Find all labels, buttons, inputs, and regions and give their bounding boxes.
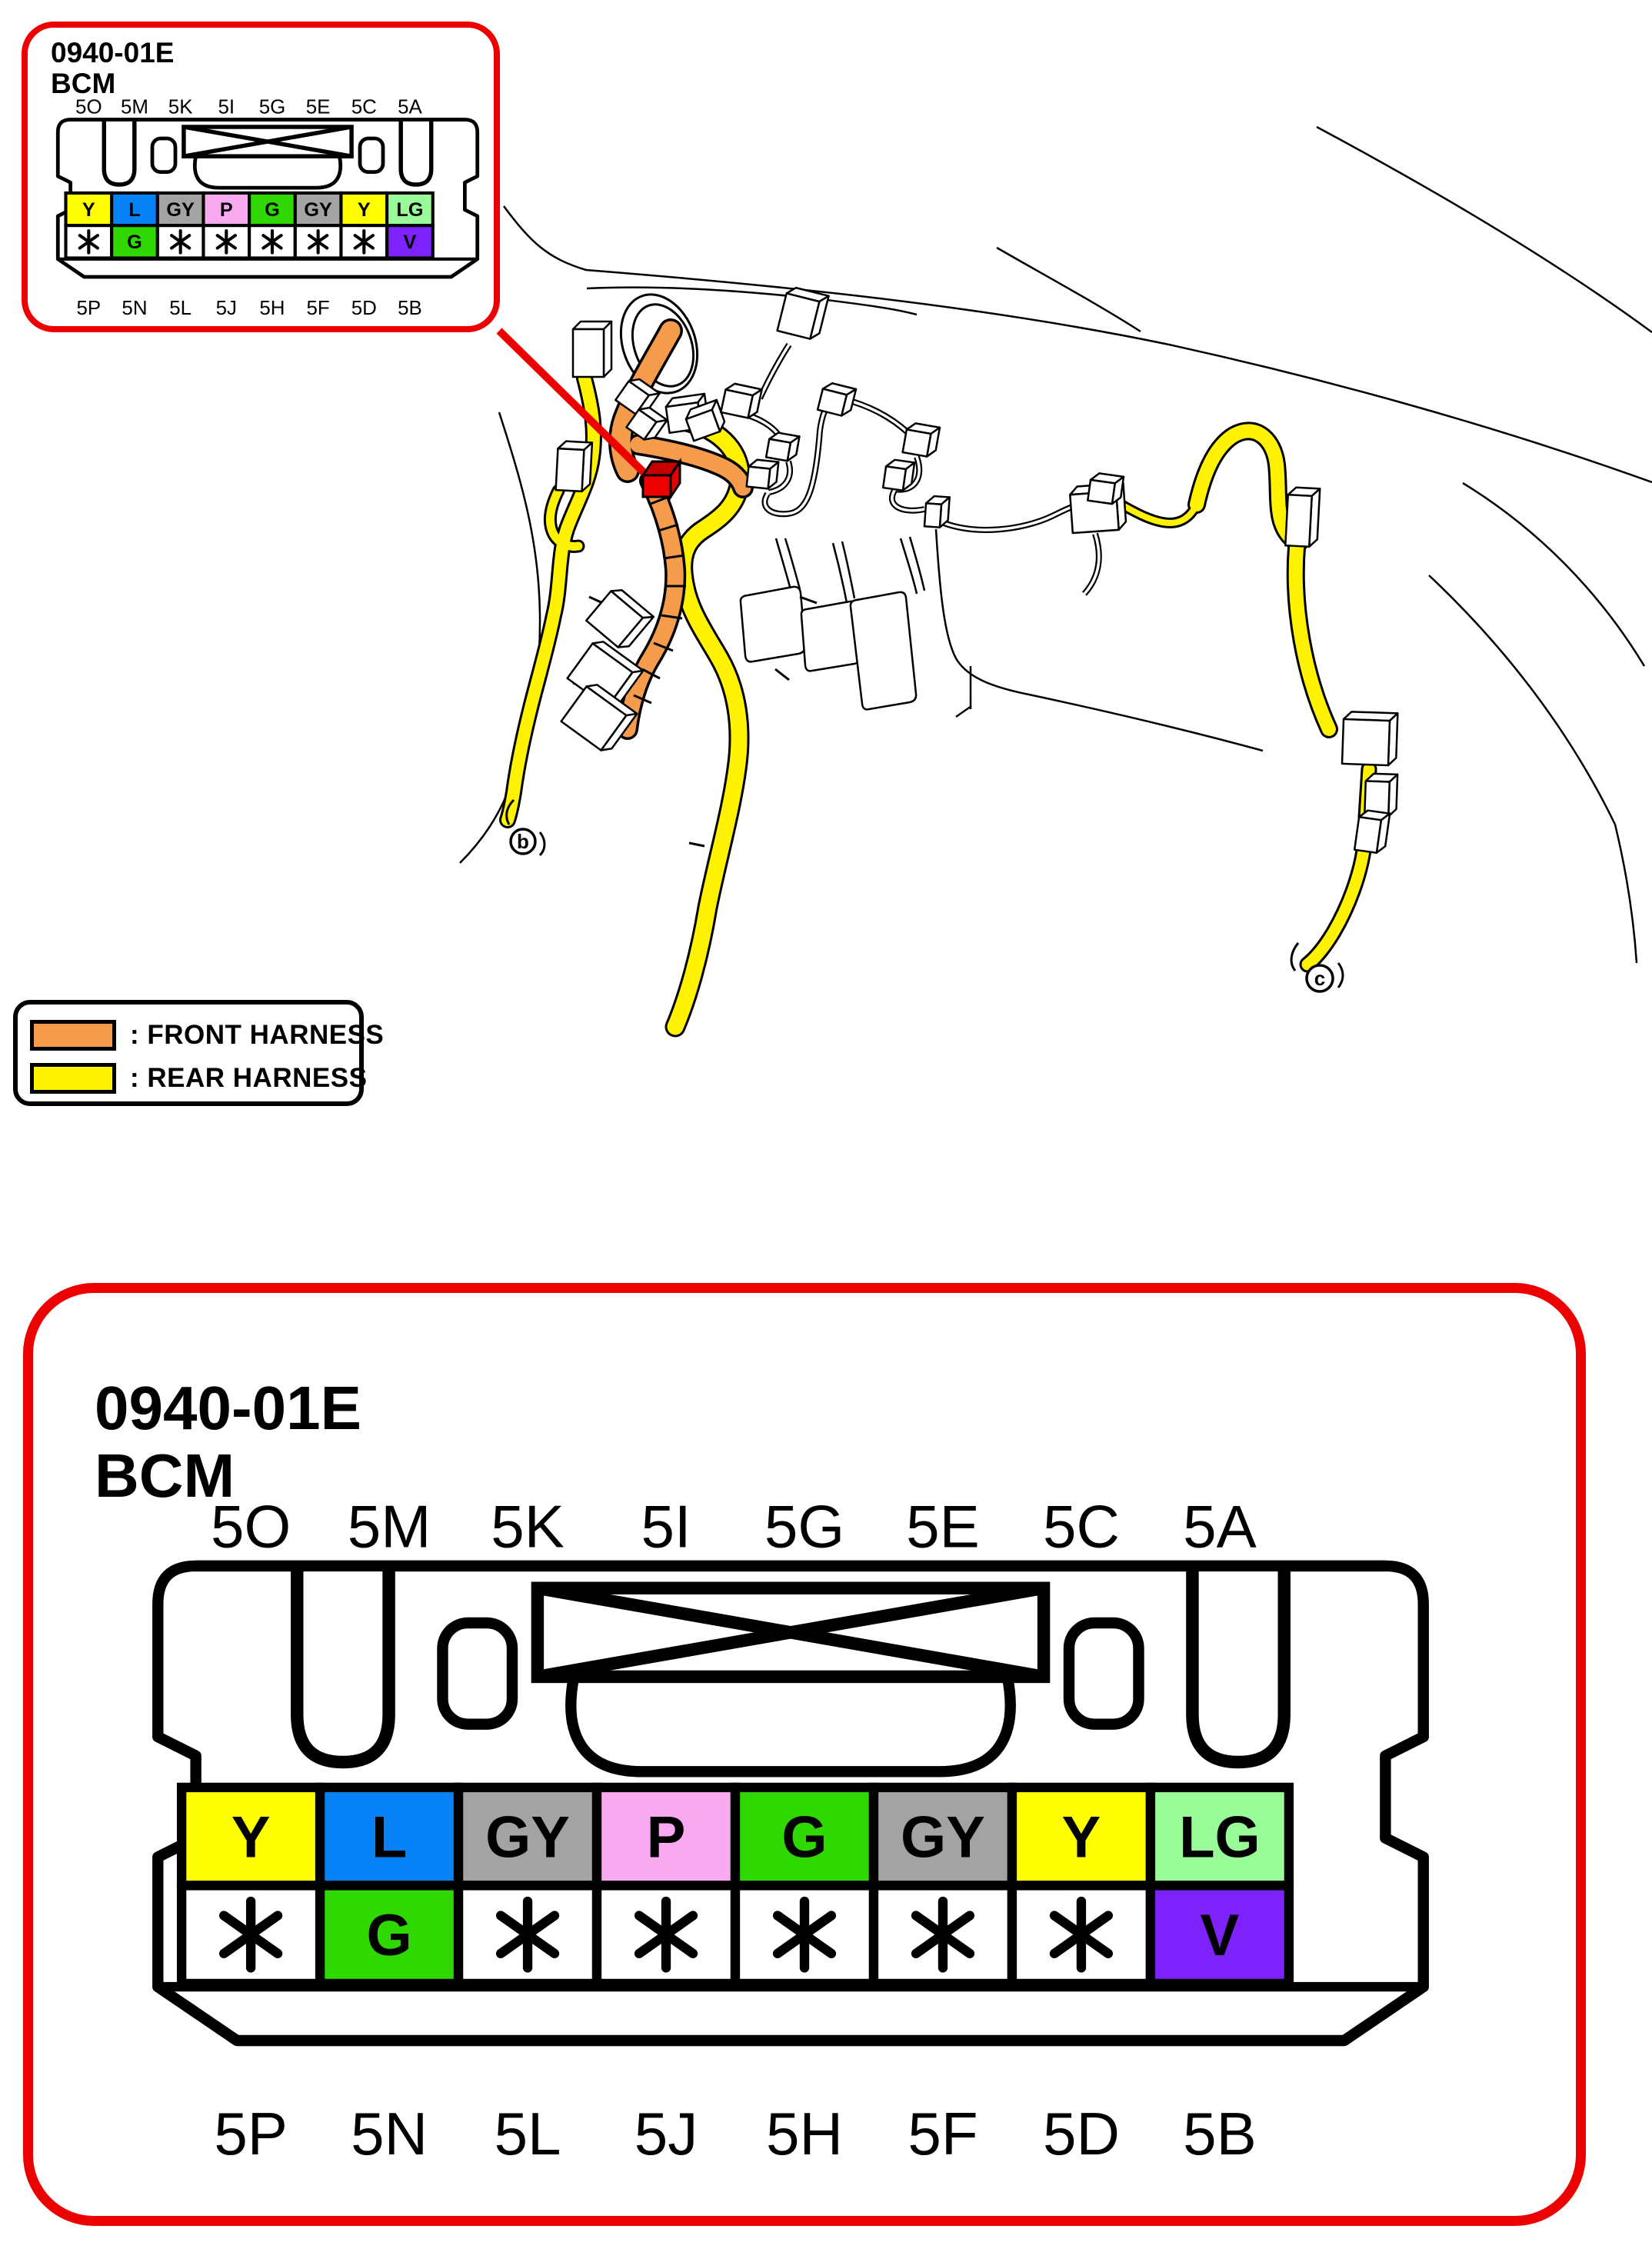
wire-color-code: P <box>647 1804 686 1870</box>
key-slot-left <box>297 1566 388 1762</box>
wire-color-code: G <box>265 199 280 221</box>
wire-color-code: V <box>404 232 417 253</box>
connector-block <box>903 422 940 458</box>
terminal-cell-top-2: L <box>320 1788 458 1886</box>
terminal-cell-bottom-3 <box>458 1885 597 1984</box>
pin-label-bottom-5D: 5D <box>1043 2100 1120 2167</box>
terminal-cell-bottom-8: V <box>387 225 433 258</box>
terminal-cell-top-5: G <box>249 193 295 225</box>
terminal-cell-top-1: Y <box>66 193 112 225</box>
terminal-cell-bottom-1 <box>66 225 112 258</box>
rear-harness-label: : REAR HARNESS <box>130 1063 367 1094</box>
pin-label-bottom-5L: 5L <box>169 298 192 319</box>
reference-markers: b c <box>507 800 1343 991</box>
key-slot-right <box>401 119 431 185</box>
marker-b-label: b <box>517 830 529 853</box>
terminal-cell-bottom-2: G <box>320 1885 458 1984</box>
pin-label-top-5E: 5E <box>306 96 331 118</box>
wire-color-code: Y <box>231 1804 271 1870</box>
terminal-cell-top-7: Y <box>1012 1788 1151 1886</box>
connector-block <box>1285 487 1320 547</box>
c-slot-left <box>152 138 175 172</box>
pin-label-bottom-5N: 5N <box>122 298 147 319</box>
terminal-cell-bottom-6 <box>874 1885 1012 1984</box>
wire-color-code: GY <box>304 199 332 221</box>
pin-label-bottom-5J: 5J <box>634 2100 698 2167</box>
pin-label-bottom-5F: 5F <box>908 2100 978 2167</box>
terminal-cell-top-4: P <box>203 193 249 225</box>
connector-pinout-small: 5O5M5K5I5G5E5C5AYLGYPGGYYLGGV5P5N5L5J5H5… <box>37 92 498 323</box>
terminal-cell-top-3: GY <box>458 1788 597 1886</box>
manual-page: { "connector": { "id": "0940-01E", "name… <box>0 0 1652 2249</box>
connector-block <box>721 382 761 420</box>
wire-color-code: GY <box>485 1804 570 1870</box>
pin-label-top-5G: 5G <box>764 1492 844 1560</box>
connector-block <box>1342 711 1397 765</box>
wire-color-code: Y <box>358 199 371 221</box>
wire-color-code: Y <box>82 199 95 221</box>
connector-callout-small: 0940-01E BCM 5O5M5K5I5G5E5C5AYLGYPGGYYLG… <box>22 22 500 332</box>
terminal-cell-bottom-4 <box>203 225 249 258</box>
pin-label-top-5O: 5O <box>211 1492 291 1560</box>
terminal-cell-bottom-8: V <box>1151 1885 1289 1984</box>
pin-label-bottom-5N: 5N <box>351 2100 428 2167</box>
wire-color-code: Y <box>1062 1804 1101 1870</box>
connector-id-large: 0940-01E <box>95 1376 361 1441</box>
terminal-cell-top-4: P <box>597 1788 735 1886</box>
pin-label-bottom-5J: 5J <box>216 298 237 319</box>
pin-label-top-5K: 5K <box>168 96 193 118</box>
key-slot-right <box>1192 1566 1284 1762</box>
terminal-cell-top-6: GY <box>295 193 341 225</box>
terminal-cell-top-8: LG <box>1151 1788 1289 1886</box>
wire-color-code: GY <box>901 1804 985 1870</box>
terminal-cell-top-5: G <box>735 1788 874 1886</box>
pin-label-top-5C: 5C <box>351 96 377 118</box>
terminal-cell-top-8: LG <box>387 193 433 225</box>
terminal-cell-bottom-1 <box>182 1885 320 1984</box>
terminal-cell-bottom-5 <box>249 225 295 258</box>
front-harness-swatch <box>30 1020 116 1051</box>
dashboard-outline <box>460 127 1652 963</box>
connector-block <box>778 286 829 341</box>
pin-label-bottom-5P: 5P <box>214 2100 288 2167</box>
connector-block <box>556 441 592 491</box>
pin-label-bottom-5B: 5B <box>398 298 422 319</box>
pin-label-bottom-5F: 5F <box>307 298 330 319</box>
wire-color-code: G <box>127 232 142 253</box>
connector-callout-large: 0940-01E BCM 5O5M5K5I5G5E5C5AYLGYPGGYYLG… <box>23 1283 1586 2226</box>
rear-harness-swatch <box>30 1063 116 1094</box>
pin-label-bottom-5L: 5L <box>495 2100 561 2167</box>
bcm-connector-highlight <box>643 461 680 497</box>
wire-color-code: G <box>366 1903 411 1968</box>
connector-block <box>924 495 950 528</box>
connector-block <box>747 459 779 490</box>
terminal-cell-bottom-5 <box>735 1885 874 1984</box>
terminal-cell-bottom-2: G <box>112 225 158 258</box>
connector-id: 0940-01E <box>51 38 174 68</box>
marker-c-label: c <box>1314 967 1325 990</box>
pin-label-bottom-5B: 5B <box>1183 2100 1257 2167</box>
pin-label-bottom-5H: 5H <box>766 2100 843 2167</box>
pin-label-top-5A: 5A <box>1183 1492 1257 1560</box>
c-slot-right <box>1069 1623 1139 1724</box>
front-harness-label: : FRONT HARNESS <box>130 1020 384 1051</box>
wire-color-code: G <box>781 1804 827 1870</box>
wire-color-code: L <box>128 199 140 221</box>
wire-color-code: GY <box>166 199 195 221</box>
pin-label-top-5K: 5K <box>491 1492 565 1560</box>
wire-color-code: P <box>220 199 233 221</box>
harness-legend: : FRONT HARNESS : REAR HARNESS <box>13 1000 364 1106</box>
pin-label-top-5I: 5I <box>641 1492 691 1560</box>
c-slot-right <box>360 138 383 172</box>
pin-label-top-5G: 5G <box>259 96 286 118</box>
pin-label-top-5M: 5M <box>348 1492 431 1560</box>
legend-row-rear: : REAR HARNESS <box>30 1061 367 1095</box>
legend-row-front: : FRONT HARNESS <box>30 1018 384 1052</box>
terminal-cell-bottom-7 <box>341 225 387 258</box>
pin-label-bottom-5H: 5H <box>259 298 285 319</box>
pin-label-top-5E: 5E <box>906 1492 980 1560</box>
center-slot <box>195 156 340 188</box>
connector-block <box>1354 809 1390 854</box>
terminal-cell-bottom-4 <box>597 1885 735 1984</box>
wire-color-code: LG <box>396 199 423 221</box>
terminal-cell-top-6: GY <box>874 1788 1012 1886</box>
terminal-cell-bottom-7 <box>1012 1885 1151 1984</box>
terminal-cell-top-3: GY <box>158 193 204 225</box>
terminal-cell-bottom-6 <box>295 225 341 258</box>
wire-color-code: LG <box>1179 1804 1261 1870</box>
wire-color-code: V <box>1201 1903 1240 1968</box>
pedals <box>741 587 916 709</box>
terminal-cell-top-1: Y <box>182 1788 320 1886</box>
terminal-cell-top-2: L <box>112 193 158 225</box>
pin-label-top-5M: 5M <box>121 96 148 118</box>
pin-label-bottom-5D: 5D <box>351 298 377 319</box>
connector-pinout-large: 5O5M5K5I5G5E5C5AYLGYPGGYYLGGV5P5N5L5J5H5… <box>95 1484 1487 2180</box>
pin-label-top-5I: 5I <box>218 96 235 118</box>
terminal-cell-top-7: Y <box>341 193 387 225</box>
center-slot <box>571 1677 1010 1771</box>
connector-block <box>766 431 799 462</box>
pin-label-bottom-5P: 5P <box>76 298 101 319</box>
pin-label-top-5A: 5A <box>398 96 422 118</box>
pin-label-top-5O: 5O <box>75 96 102 118</box>
key-slot-left <box>104 119 135 185</box>
terminal-cell-bottom-3 <box>158 225 204 258</box>
connector-block <box>818 381 856 418</box>
connector-block <box>1087 472 1124 505</box>
pin-label-top-5C: 5C <box>1043 1492 1120 1560</box>
c-slot-left <box>443 1623 513 1724</box>
wire-color-code: L <box>371 1804 407 1870</box>
connector-block <box>573 322 611 377</box>
